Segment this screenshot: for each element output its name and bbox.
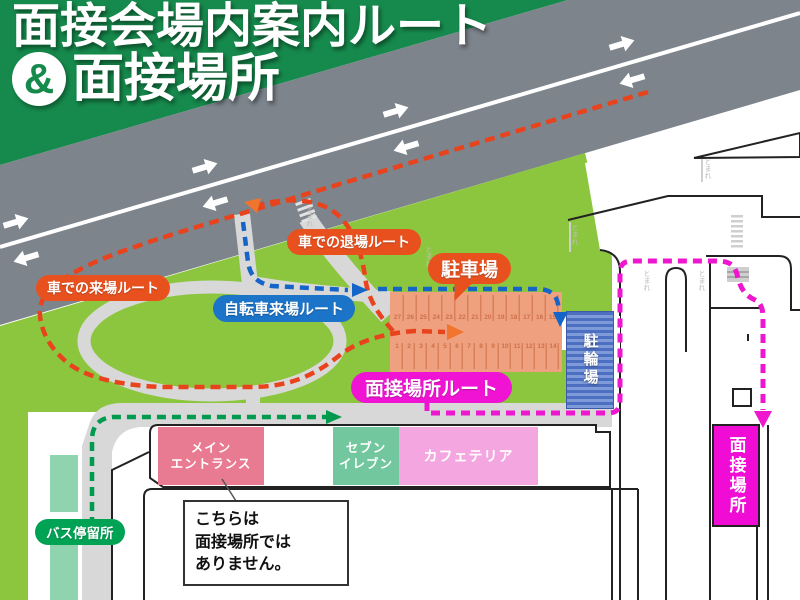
stall-number: 8 <box>475 343 487 350</box>
stall-number: 10 <box>499 343 511 350</box>
stall-number: 20 <box>481 314 494 321</box>
ampersand-icon: & <box>12 52 66 106</box>
interview-place-room: 面接場所 <box>712 424 760 527</box>
tomare-road-marking: とまれ <box>704 158 711 179</box>
bicycle-parking-area: 駐輪場 <box>566 311 614 409</box>
stall-number: 9 <box>487 343 499 350</box>
interview-place-label: 面接場所 <box>724 436 749 516</box>
title-line1: 面接会場内案内ルート <box>12 2 492 52</box>
stall-number: 19 <box>494 314 507 321</box>
building-main-entrance: メイン エントランス <box>158 427 264 485</box>
stall-number: 15 <box>546 314 559 321</box>
stall-number: 2 <box>403 343 415 350</box>
parking-lot: 27262524232221201918171615 1234567891011… <box>390 292 562 372</box>
skylight-square <box>733 389 751 406</box>
stall-number: 6 <box>451 343 463 350</box>
stall-number: 26 <box>404 314 417 321</box>
label-interview-route: 面接場所ルート <box>351 372 512 403</box>
stall-number: 25 <box>417 314 430 321</box>
stall-number: 11 <box>511 343 523 350</box>
venue-route-map: 27262524232221201918171615 1234567891011… <box>0 0 800 600</box>
tomare-road-marking: とまれ <box>698 270 705 291</box>
label-bus-stop: バス停留所 <box>35 519 125 545</box>
tomare-road-marking: とまれ <box>571 224 578 245</box>
stall-number: 17 <box>520 314 533 321</box>
stairs-icon <box>727 267 749 282</box>
building-seven-eleven: セブン イレブン <box>333 427 399 485</box>
stall-number: 24 <box>430 314 443 321</box>
stall-number: 16 <box>533 314 546 321</box>
bicycle-parking-label: 駐輪場 <box>580 333 601 387</box>
crossing-path <box>242 214 250 284</box>
label-car-arrival-route: 車での来場ルート <box>36 275 170 301</box>
stall-number: 13 <box>535 343 547 350</box>
page-title: 面接会場内案内ルート & 面接場所 <box>12 2 492 106</box>
stall-number: 18 <box>507 314 520 321</box>
stall-number: 22 <box>456 314 469 321</box>
stall-number: 14 <box>547 343 559 350</box>
stall-number: 23 <box>443 314 456 321</box>
label-bicycle-route: 自転車来場ルート <box>213 295 355 322</box>
stall-number: 21 <box>469 314 482 321</box>
stall-number: 27 <box>391 314 404 321</box>
stall-number: 12 <box>523 343 535 350</box>
title-line2: 面接場所 <box>72 52 280 106</box>
stall-number: 3 <box>415 343 427 350</box>
parking-stalls-bottom: 1234567891011121314 <box>391 343 559 369</box>
stall-number: 5 <box>439 343 451 350</box>
tomare-road-marking: とまれ <box>643 270 650 291</box>
notice-callout: こちらは 面接場所では ありません。 <box>183 500 349 586</box>
label-parking: 駐車場 <box>428 253 511 284</box>
label-car-exit-route: 車での退場ルート <box>287 229 421 255</box>
stall-number: 1 <box>391 343 403 350</box>
building-cafeteria: カフェテリア <box>399 427 538 485</box>
bus-platform <box>50 455 78 512</box>
stall-number: 4 <box>427 343 439 350</box>
stall-number: 7 <box>463 343 475 350</box>
tomare-road-marking: とまれ <box>306 206 313 227</box>
parking-stalls-top: 27262524232221201918171615 <box>391 295 559 321</box>
